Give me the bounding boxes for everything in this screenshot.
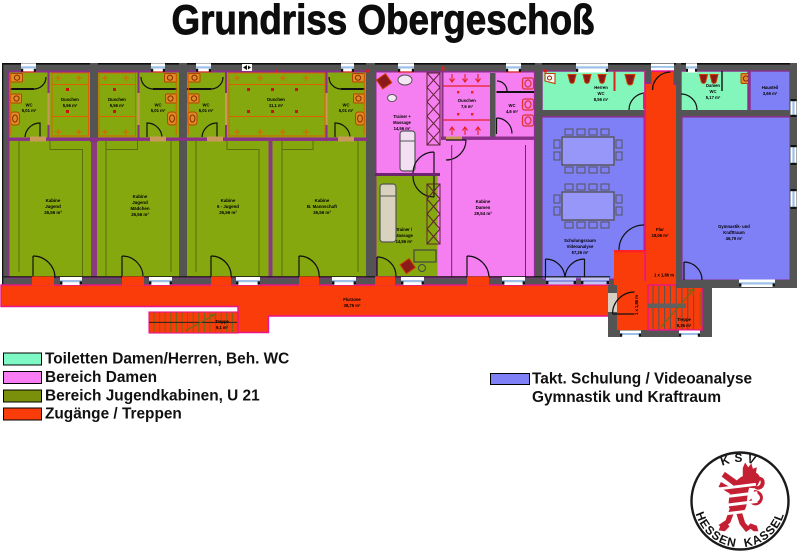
svg-text:B. Mannschaft: B. Mannschaft: [307, 204, 338, 209]
svg-text:Trainer /: Trainer /: [396, 227, 413, 232]
svg-text:Kabine: Kabine: [476, 199, 491, 204]
svg-text:Videoanalyse: Videoanalyse: [567, 244, 594, 249]
svg-text:Bereich Damen: Bereich Damen: [45, 369, 157, 386]
svg-text:5,56 m²: 5,56 m²: [63, 103, 78, 108]
svg-text:5,01 m²: 5,01 m²: [151, 108, 166, 113]
svg-text:Zugänge / Treppen: Zugänge / Treppen: [45, 406, 182, 423]
svg-text:Treppe: Treppe: [215, 319, 229, 324]
svg-text:WC: WC: [710, 89, 717, 94]
svg-text:11,1 m²: 11,1 m²: [269, 103, 284, 108]
svg-text:26,56 m²: 26,56 m²: [219, 210, 237, 215]
svg-text:WC: WC: [509, 103, 516, 108]
svg-text:Bereich Jugendkabinen, U 21: Bereich Jugendkabinen, U 21: [45, 388, 260, 405]
svg-text:Gymnastik- und: Gymnastik- und: [718, 224, 750, 229]
svg-text:4,6 m²: 4,6 m²: [506, 109, 519, 114]
svg-text:Kabine: Kabine: [315, 198, 330, 203]
svg-text:Kabine: Kabine: [133, 194, 148, 199]
svg-text:9,1 m²: 9,1 m²: [216, 325, 229, 330]
svg-text:Toiletten Damen/Herren, Beh. W: Toiletten Damen/Herren, Beh. WC: [45, 351, 289, 368]
svg-text:Jugend: Jugend: [45, 204, 61, 209]
svg-text:Jugend: Jugend: [132, 200, 148, 205]
svg-text:5,01 m²: 5,01 m²: [22, 108, 37, 113]
svg-text:5,01 m²: 5,01 m²: [339, 108, 354, 113]
svg-text:Hausteil: Hausteil: [762, 85, 778, 90]
svg-text:Massage: Massage: [393, 120, 411, 125]
svg-text:Herren: Herren: [594, 85, 608, 90]
svg-text:38,76 m²: 38,76 m²: [344, 303, 361, 308]
svg-text:Duschen: Duschen: [61, 97, 79, 102]
svg-text:5,17 m²: 5,17 m²: [706, 95, 721, 100]
svg-text:14,56 m²: 14,56 m²: [396, 239, 413, 244]
svg-text:1 x 1,86 m: 1 x 1,86 m: [634, 295, 639, 315]
svg-text:5,01 m²: 5,01 m²: [199, 108, 214, 113]
svg-text:Kabine: Kabine: [46, 198, 61, 203]
svg-text:5,56 m²: 5,56 m²: [110, 103, 125, 108]
svg-text:Damen: Damen: [476, 205, 491, 210]
svg-text:Schulungsraum: Schulungsraum: [564, 238, 596, 243]
svg-text:29,54 m²: 29,54 m²: [474, 211, 492, 216]
svg-text:46,79 m²: 46,79 m²: [726, 236, 743, 241]
svg-text:WC: WC: [598, 91, 605, 96]
svg-text:WC: WC: [203, 103, 210, 108]
svg-text:WC: WC: [155, 103, 162, 108]
svg-text:18,06 m²: 18,06 m²: [652, 233, 669, 238]
svg-text:Flurzone: Flurzone: [343, 297, 361, 302]
svg-text:WC: WC: [26, 103, 33, 108]
svg-text:Flur: Flur: [656, 227, 664, 232]
svg-text:7,6 m²: 7,6 m²: [461, 104, 474, 109]
svg-text:Takt. Schulung / Videoanalyse: Takt. Schulung / Videoanalyse: [532, 371, 753, 388]
svg-text:Duschen: Duschen: [458, 98, 476, 103]
svg-text:Duschen: Duschen: [267, 97, 285, 102]
svg-text:57,26 m²: 57,26 m²: [572, 250, 589, 255]
svg-text:14,56 m²: 14,56 m²: [394, 126, 411, 131]
svg-text:1 x 1,86 m: 1 x 1,86 m: [654, 273, 674, 278]
svg-text:Grundriss Obergeschoß: Grundriss Obergeschoß: [172, 0, 595, 43]
svg-text:Krafttraum: Krafttraum: [723, 230, 745, 235]
svg-text:9,36 m²: 9,36 m²: [677, 323, 692, 328]
svg-text:WC: WC: [343, 103, 350, 108]
svg-text:Massage: Massage: [395, 233, 413, 238]
svg-text:26,56 m²: 26,56 m²: [313, 210, 331, 215]
svg-text:8,56 m²: 8,56 m²: [594, 97, 609, 102]
svg-text:Trainer +: Trainer +: [393, 114, 411, 119]
svg-text:26,56 m²: 26,56 m²: [44, 210, 62, 215]
svg-text:6 - Jugend: 6 - Jugend: [217, 204, 239, 209]
svg-text:26,56 m²: 26,56 m²: [131, 212, 149, 217]
svg-text:3,66 m²: 3,66 m²: [763, 91, 778, 96]
svg-text:Gymnastik und Kraftraum: Gymnastik und Kraftraum: [532, 389, 721, 406]
svg-text:Duschen: Duschen: [108, 97, 126, 102]
svg-text:Treppe: Treppe: [677, 317, 691, 322]
svg-text:Mädchen: Mädchen: [130, 206, 149, 211]
svg-text:Kabine: Kabine: [221, 198, 236, 203]
